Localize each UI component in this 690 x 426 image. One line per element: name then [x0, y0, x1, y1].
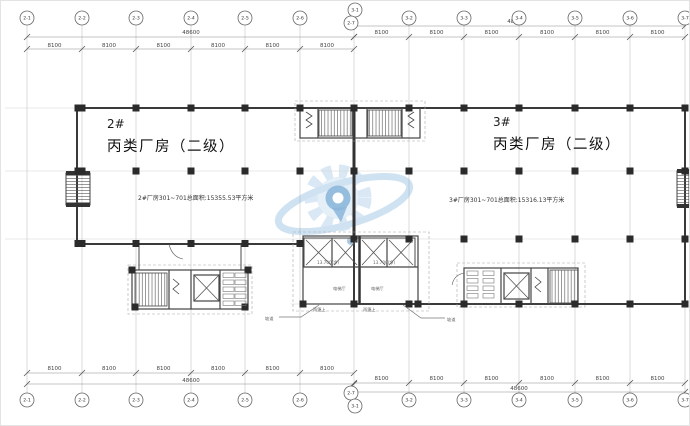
column [79, 240, 86, 247]
axis-bubble-label: 2-2 [78, 16, 86, 22]
column [682, 168, 689, 175]
level-note: 13.700(净) [373, 259, 395, 266]
annex-core-left [132, 244, 248, 309]
column [572, 301, 579, 308]
column [351, 105, 358, 112]
ramp-label: 坡道 [447, 316, 456, 323]
stair-flight [368, 110, 401, 136]
building-3-area-note: 3#厂房301~701总面积:15316.13平方米 [449, 196, 564, 204]
building-2-titles: 2# 丙类厂房（二级） 2#厂房301~701总面积:15355.53平方米 [107, 117, 253, 202]
bay-dimension-label: 8100 [596, 30, 610, 36]
column [516, 105, 523, 112]
column [572, 105, 579, 112]
column [245, 267, 252, 274]
axis-bubble-label: 3-4 [515, 16, 523, 22]
wall-break-symbol [173, 279, 179, 294]
column [242, 168, 249, 175]
bay-dimension-label: 8100 [102, 366, 116, 372]
building-2-name: 丙类厂房（二级） [107, 138, 235, 155]
total-dimension-label: 48600 [510, 386, 528, 392]
toilet-fixture [223, 287, 234, 292]
bay-dimension-label: 8100 [157, 43, 171, 49]
building-2-area-note: 2#厂房301~701总面积:15355.53平方米 [138, 194, 253, 202]
column [351, 301, 358, 308]
stair-core-top [300, 108, 420, 138]
total-dimension-label: 48600 [182, 378, 200, 384]
building-3-titles: 3# 丙类厂房（二级） 3#厂房301~701总面积:15316.13平方米 [449, 115, 621, 204]
column [133, 240, 140, 247]
bay-dimension-label: 8100 [266, 43, 280, 49]
bay-dimension-label: 8100 [651, 30, 665, 36]
axis-bubble-label: 3-2 [405, 398, 413, 404]
stair-flight [135, 273, 167, 306]
axis-bubble-label: 2-6 [296, 398, 304, 404]
column [133, 168, 140, 175]
toilet-fixture [223, 273, 234, 278]
bay-dimension-label: 8100 [375, 376, 389, 382]
toilet-fixture [235, 273, 246, 278]
bay-dimension-label: 8100 [320, 366, 334, 372]
column [461, 301, 468, 308]
column [461, 105, 468, 112]
axis-bubble-label: 3-7 [681, 398, 689, 404]
bay-dimension-label: 8100 [48, 366, 62, 372]
toilet-fixture [223, 280, 234, 285]
bay-dimension-label: 8100 [266, 366, 280, 372]
bay-dimension-label: 8100 [651, 376, 665, 382]
canopy-label: 雨篷上 [313, 306, 326, 313]
bay-dimension-label: 8100 [540, 376, 554, 382]
column [75, 105, 82, 112]
bay-dimension-label: 8100 [375, 30, 389, 36]
column [300, 301, 307, 308]
column [297, 240, 304, 247]
watermark-logo [273, 165, 415, 245]
column [133, 105, 140, 112]
column [627, 236, 634, 243]
axis-bubble-label: 2-7 [347, 21, 355, 27]
bay-dimension-label: 8100 [596, 376, 610, 382]
door-swing [169, 244, 183, 259]
axis-bubble-label: 3-6 [626, 398, 634, 404]
column [516, 236, 523, 243]
bay-dimension-label: 8100 [430, 376, 444, 382]
wall-louver-left [66, 171, 90, 207]
wall-break-symbol [306, 112, 312, 128]
column [242, 304, 249, 311]
column [242, 105, 249, 112]
building-3-name: 丙类厂房（二级） [493, 136, 621, 153]
door-swing [452, 273, 464, 285]
level-note: 13.700(净) [317, 259, 339, 266]
axis-bubble-label: 2-3 [132, 398, 140, 404]
canopy-label: 雨篷上 [363, 306, 376, 313]
toilet-fixture [467, 294, 478, 299]
axis-bubble-label: 3-1 [351, 404, 359, 410]
column [406, 168, 413, 175]
column [516, 168, 523, 175]
column [188, 240, 195, 247]
column [351, 236, 358, 243]
column [461, 236, 468, 243]
bay-dimension-label: 8100 [540, 30, 554, 36]
bay-dimension-label: 8100 [485, 30, 499, 36]
column [682, 105, 689, 112]
elevator-core-center [303, 236, 418, 304]
column [297, 168, 304, 175]
total-dimension-label: 48600 [182, 30, 200, 36]
axis-bubble-label: 2-2 [78, 398, 86, 404]
lobby-label: 电梯厅 [371, 285, 384, 292]
axis-bubble-label: 2-5 [241, 16, 249, 22]
column [461, 168, 468, 175]
lobby-label: 电梯厅 [333, 285, 346, 292]
column [188, 168, 195, 175]
axis-bubble-label: 3-7 [681, 16, 689, 22]
axis-bubble-label: 3-4 [515, 398, 523, 404]
column [627, 301, 634, 308]
column [132, 304, 139, 311]
column [79, 168, 86, 175]
column [682, 301, 689, 308]
column [129, 267, 136, 274]
axis-bubble-label: 3-5 [571, 398, 579, 404]
column [627, 105, 634, 112]
stair-flight [319, 110, 352, 136]
column [297, 105, 304, 112]
column [406, 301, 413, 308]
axis-bubble-label: 3-5 [571, 16, 579, 22]
axis-bubble-label: 3-3 [460, 16, 468, 22]
toilet-fixture [483, 271, 494, 276]
stair-flight [550, 270, 578, 303]
toilet-fixture [483, 294, 494, 299]
bay-dimension-label: 8100 [485, 376, 499, 382]
axis-bubble-label: 2-1 [23, 16, 31, 22]
toilet-fixture [223, 301, 234, 306]
column [682, 236, 689, 243]
bay-dimension-label: 8100 [102, 43, 116, 49]
column [188, 105, 195, 112]
bay-dimension-label: 8100 [211, 366, 225, 372]
axis-bubble-label: 2-1 [23, 398, 31, 404]
axis-bubble-label: 3-2 [405, 16, 413, 22]
wall-break-symbol [535, 277, 541, 292]
floor-plan-drawing: 8100810081008100810081004860081008100810… [1, 1, 690, 426]
toilet-fixture [235, 294, 246, 299]
toilet-fixture [235, 287, 246, 292]
toilet-fixture [235, 280, 246, 285]
column [572, 236, 579, 243]
column [406, 105, 413, 112]
column [516, 301, 523, 308]
floor-plan-canvas: 8100810081008100810081004860081008100810… [0, 0, 690, 426]
axis-bubble-label: 2-6 [296, 16, 304, 22]
toilet-fixture [467, 279, 478, 284]
building-2-number: 2# [107, 117, 125, 131]
toilet-fixture [223, 294, 234, 299]
ramp-label: 坡道 [265, 315, 274, 322]
bay-dimension-label: 8100 [430, 30, 444, 36]
wall-louver-right [677, 169, 689, 208]
axis-bubble-label: 2-7 [347, 391, 355, 397]
axis-bubble-label: 2-5 [241, 398, 249, 404]
toilet-fixture [483, 279, 494, 284]
bay-dimension-label: 8100 [157, 366, 171, 372]
toilet-fixture [483, 286, 494, 291]
toilet-fixture [467, 286, 478, 291]
watermark-pin-hole [333, 193, 344, 204]
building-3-number: 3# [493, 115, 511, 129]
axis-bubble-label: 2-3 [132, 16, 140, 22]
column [415, 301, 422, 308]
bay-dimension-label: 8100 [48, 43, 62, 49]
bay-dimension-label: 8100 [320, 43, 334, 49]
axis-bubble-label: 2-4 [187, 16, 195, 22]
column [351, 168, 358, 175]
axis-bubble-label: 3-6 [626, 16, 634, 22]
column [572, 168, 579, 175]
column [242, 240, 249, 247]
axis-bubble-label: 3-3 [460, 398, 468, 404]
column [627, 168, 634, 175]
bay-dimension-label: 8100 [211, 43, 225, 49]
axis-bubble-label: 2-4 [187, 398, 195, 404]
axis-bubble-label: 3-1 [351, 8, 359, 14]
toilet-fixture [467, 271, 478, 276]
